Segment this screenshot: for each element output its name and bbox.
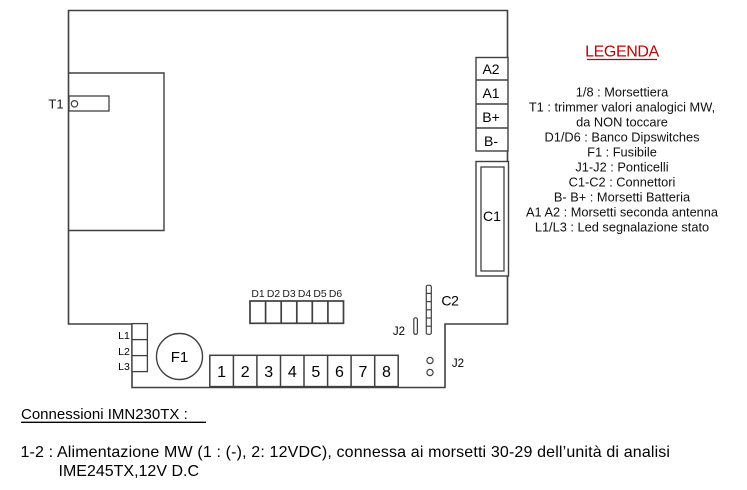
svg-text:L1: L1 bbox=[118, 330, 130, 342]
svg-text:7: 7 bbox=[358, 364, 367, 381]
svg-text:D1/D6 : Banco Dipswitches: D1/D6 : Banco Dipswitches bbox=[544, 130, 699, 145]
svg-text:F1: F1 bbox=[171, 349, 189, 366]
svg-text:LEGENDA: LEGENDA bbox=[585, 44, 659, 61]
svg-text:B- B+ : Morsetti Batteria: B- B+ : Morsetti Batteria bbox=[554, 190, 691, 205]
svg-text:L3: L3 bbox=[118, 361, 130, 373]
svg-text:4: 4 bbox=[288, 364, 297, 381]
svg-text:A1: A1 bbox=[482, 85, 499, 101]
svg-text:6: 6 bbox=[335, 364, 344, 381]
svg-text:B-: B- bbox=[484, 133, 498, 149]
svg-text:1: 1 bbox=[217, 364, 226, 381]
svg-text:C1-C2 : Connettori: C1-C2 : Connettori bbox=[569, 175, 676, 190]
svg-text:D1: D1 bbox=[251, 289, 265, 300]
svg-text:T1 : trimmer valori analogici: T1 : trimmer valori analogici MW, bbox=[529, 100, 715, 115]
svg-text:F1 : Fusibile: F1 : Fusibile bbox=[587, 145, 657, 160]
svg-text:1-2 : Alimentazione MW (1 : (-: 1-2 : Alimentazione MW (1 : (-), 2: 12VD… bbox=[21, 444, 671, 461]
svg-text:A2: A2 bbox=[482, 61, 499, 77]
svg-text:3: 3 bbox=[264, 364, 273, 381]
svg-text:A1 A2 : Morsetti seconda anten: A1 A2 : Morsetti seconda antenna bbox=[526, 205, 719, 220]
svg-text:1/8 : Morsettiera: 1/8 : Morsettiera bbox=[576, 85, 669, 100]
svg-text:J2: J2 bbox=[393, 326, 405, 338]
svg-text:T1: T1 bbox=[48, 97, 63, 112]
svg-text:Connessioni IMN230TX :: Connessioni IMN230TX : bbox=[21, 406, 188, 423]
svg-text:L1/L3 : Led segnalazione stato: L1/L3 : Led segnalazione stato bbox=[535, 220, 709, 235]
svg-text:D2: D2 bbox=[267, 289, 281, 300]
svg-text:2: 2 bbox=[241, 364, 250, 381]
svg-text:D5: D5 bbox=[313, 289, 327, 300]
svg-text:C1: C1 bbox=[483, 208, 501, 224]
svg-text:C2: C2 bbox=[441, 293, 459, 309]
svg-text:5: 5 bbox=[311, 364, 320, 381]
svg-text:IME245TX,12V D.C: IME245TX,12V D.C bbox=[59, 463, 200, 480]
svg-text:J2: J2 bbox=[452, 358, 464, 370]
svg-text:J1-J2 : Ponticelli: J1-J2 : Ponticelli bbox=[575, 160, 668, 175]
svg-text:da NON toccare: da NON toccare bbox=[576, 115, 668, 130]
svg-text:8: 8 bbox=[382, 364, 391, 381]
svg-text:D3: D3 bbox=[282, 289, 296, 300]
svg-text:D6: D6 bbox=[329, 289, 343, 300]
svg-text:B+: B+ bbox=[482, 109, 500, 125]
svg-text:L2: L2 bbox=[118, 346, 130, 358]
svg-text:D4: D4 bbox=[298, 289, 312, 300]
